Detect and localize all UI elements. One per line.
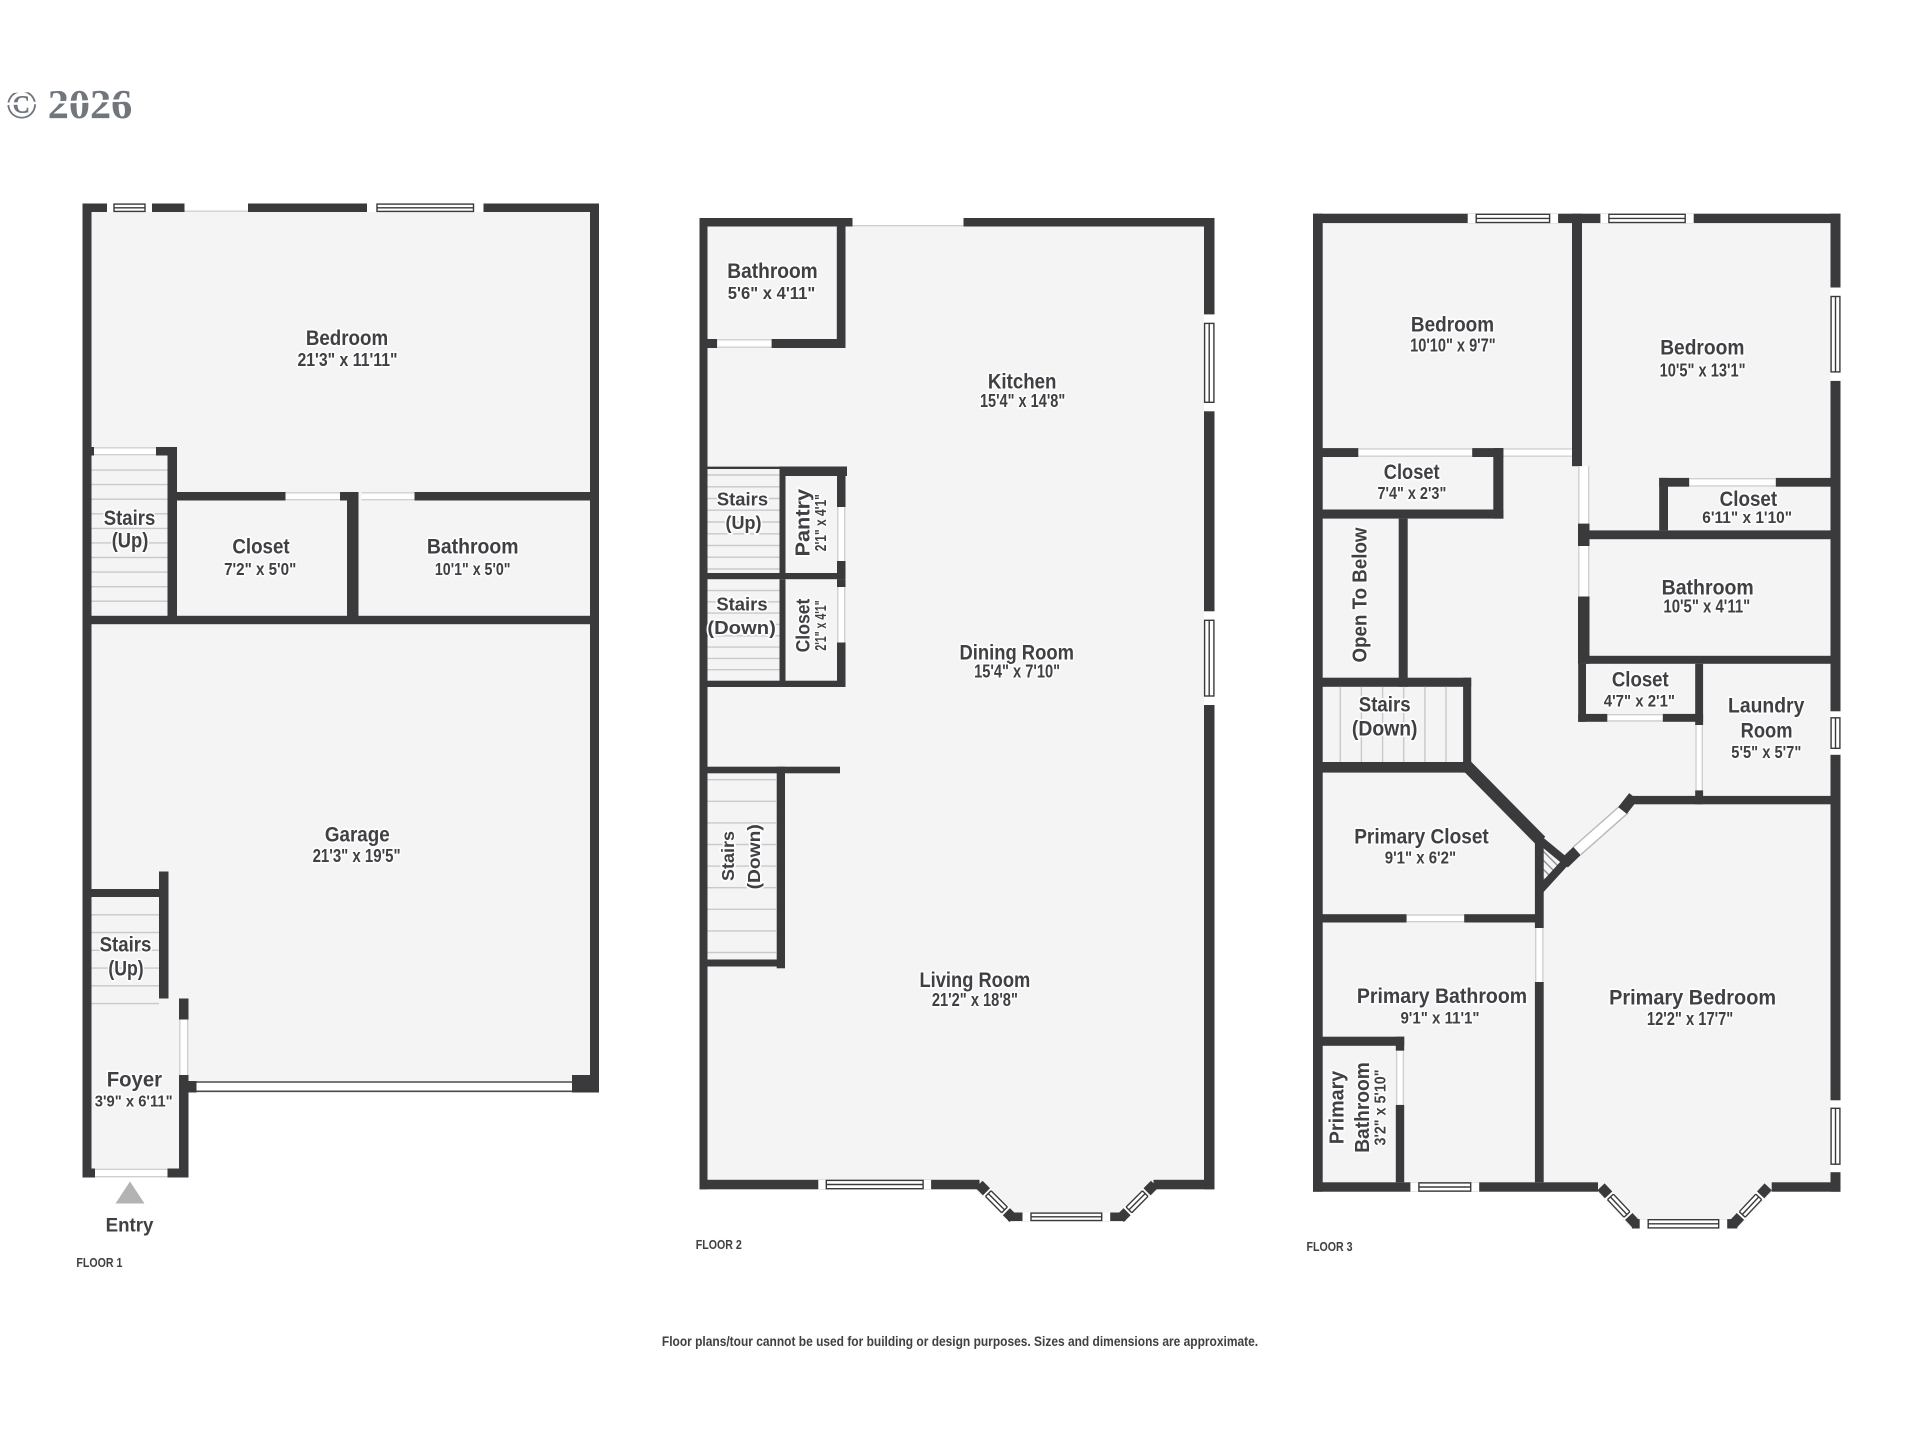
svg-text:(Up): (Up)	[726, 512, 762, 533]
svg-text:10'10" x 9'7": 10'10" x 9'7"	[1410, 336, 1496, 356]
svg-text:Foyer: Foyer	[107, 1069, 162, 1092]
svg-text:FLOOR 2: FLOOR 2	[696, 1238, 742, 1252]
svg-text:Floor plans/tour cannot be use: Floor plans/tour cannot be used for buil…	[662, 1333, 1258, 1349]
svg-text:10'5" x 4'11": 10'5" x 4'11"	[1663, 596, 1750, 616]
svg-text:(Up): (Up)	[108, 958, 143, 981]
svg-text:21'3" x 11'11": 21'3" x 11'11"	[297, 350, 397, 370]
svg-text:15'4" x 7'10": 15'4" x 7'10"	[974, 662, 1060, 682]
svg-text:2'1" x 4'1": 2'1" x 4'1"	[813, 600, 830, 650]
svg-text:21'2" x 18'8": 21'2" x 18'8"	[932, 990, 1018, 1010]
svg-text:10'5" x 13'1": 10'5" x 13'1"	[1660, 361, 1746, 381]
svg-text:Bedroom: Bedroom	[1660, 336, 1744, 359]
svg-text:Closet: Closet	[1612, 668, 1669, 691]
svg-text:5'5" x 5'7": 5'5" x 5'7"	[1731, 742, 1801, 762]
svg-text:Open To Below: Open To Below	[1350, 527, 1372, 662]
svg-text:FLOOR 3: FLOOR 3	[1307, 1240, 1353, 1254]
svg-text:Stairs: Stairs	[1359, 694, 1411, 717]
svg-text:3'9" x 6'11": 3'9" x 6'11"	[95, 1094, 173, 1111]
svg-text:(Down): (Down)	[707, 617, 776, 638]
svg-text:Closet: Closet	[1384, 461, 1440, 484]
svg-text:Stairs: Stairs	[716, 593, 767, 614]
svg-text:Pantry: Pantry	[793, 488, 815, 557]
svg-text:Room: Room	[1741, 720, 1793, 743]
svg-text:Bedroom: Bedroom	[1411, 314, 1494, 337]
svg-text:Primary Bathroom: Primary Bathroom	[1357, 985, 1527, 1008]
svg-text:3'2" x 5'10": 3'2" x 5'10"	[1373, 1070, 1390, 1146]
svg-text:Primary Closet: Primary Closet	[1354, 825, 1489, 848]
svg-text:(Down): (Down)	[744, 824, 764, 889]
svg-text:Garage: Garage	[325, 824, 390, 847]
svg-text:Stairs: Stairs	[100, 934, 152, 957]
svg-text:Primary Bedroom: Primary Bedroom	[1609, 987, 1776, 1010]
svg-text:FLOOR 1: FLOOR 1	[76, 1256, 122, 1270]
svg-text:(Up): (Up)	[112, 530, 149, 553]
svg-text:(Down): (Down)	[1352, 717, 1418, 740]
svg-text:Closet: Closet	[794, 598, 815, 652]
svg-text:Living Room: Living Room	[920, 969, 1031, 992]
svg-text:Bathroom: Bathroom	[427, 535, 519, 558]
svg-text:7'4" x 2'3": 7'4" x 2'3"	[1378, 483, 1447, 503]
svg-text:Stairs: Stairs	[717, 488, 768, 509]
svg-text:9'1" x 6'2": 9'1" x 6'2"	[1385, 847, 1456, 867]
svg-text:Stairs: Stairs	[104, 507, 156, 530]
svg-text:Primary: Primary	[1327, 1070, 1349, 1144]
svg-text:Bedroom: Bedroom	[306, 327, 388, 350]
svg-text:4'7" x 2'1": 4'7" x 2'1"	[1604, 691, 1675, 710]
svg-text:21'3" x 19'5": 21'3" x 19'5"	[313, 846, 401, 866]
svg-text:Bathroom: Bathroom	[1352, 1062, 1374, 1153]
svg-text:Entry: Entry	[106, 1216, 154, 1237]
svg-text:2'1" x 4'1": 2'1" x 4'1"	[813, 494, 830, 551]
svg-text:12'2" x 17'7": 12'2" x 17'7"	[1647, 1009, 1733, 1029]
svg-text:10'1" x 5'0": 10'1" x 5'0"	[435, 559, 511, 579]
svg-text:9'1" x 11'1": 9'1" x 11'1"	[1400, 1009, 1479, 1028]
svg-text:Closet: Closet	[232, 535, 289, 558]
svg-text:Stairs: Stairs	[718, 831, 738, 881]
svg-text:Laundry: Laundry	[1728, 695, 1805, 718]
svg-text:Bathroom: Bathroom	[727, 260, 817, 283]
svg-text:6'11" x 1'10": 6'11" x 1'10"	[1702, 508, 1792, 527]
svg-text:15'4" x 14'8": 15'4" x 14'8"	[980, 391, 1065, 411]
svg-text:7'2" x 5'0": 7'2" x 5'0"	[224, 559, 296, 579]
svg-text:5'6" x 4'11": 5'6" x 4'11"	[728, 283, 816, 303]
